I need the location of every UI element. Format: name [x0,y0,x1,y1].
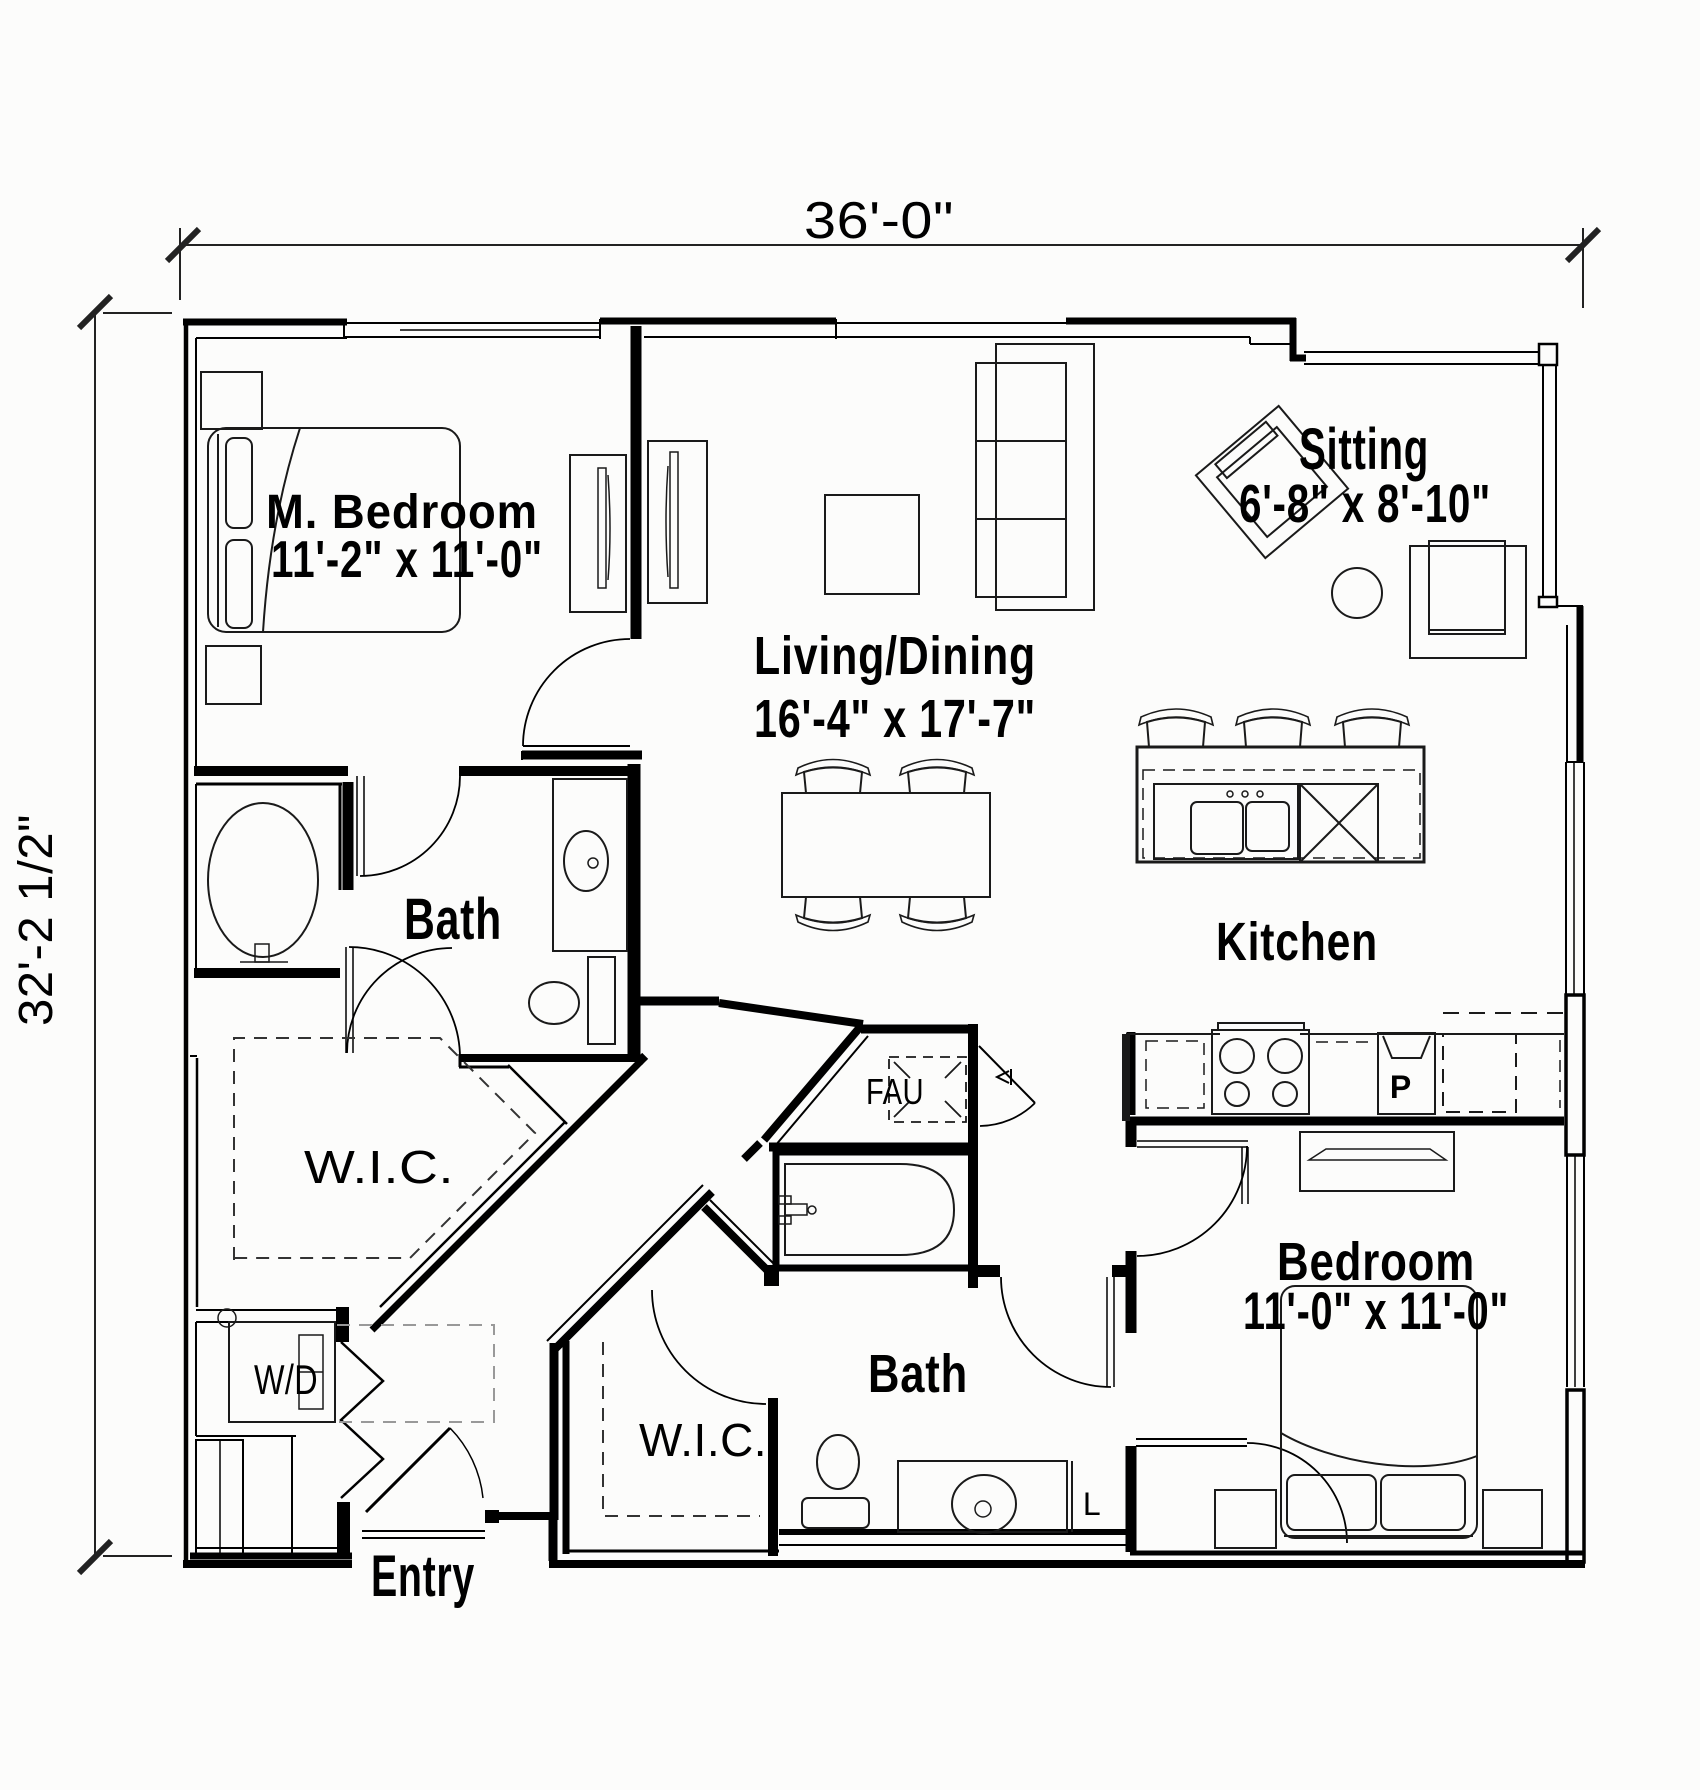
svg-text:16'-4" x 17'-7": 16'-4" x 17'-7" [754,689,1036,749]
svg-text:6'-8" x 8'-10": 6'-8" x 8'-10" [1239,474,1491,534]
svg-text:W.I.C.: W.I.C. [304,1141,454,1193]
svg-text:Bath: Bath [404,887,502,952]
svg-text:Living/Dining: Living/Dining [754,626,1036,686]
svg-text:P: P [1390,1069,1412,1105]
svg-text:36'-0": 36'-0" [804,192,954,250]
svg-text:11'-0" x 11'-0": 11'-0" x 11'-0" [1243,1282,1509,1341]
svg-text:W.I.C.: W.I.C. [639,1414,767,1466]
svg-text:W/D: W/D [254,1356,318,1403]
svg-text:Kitchen: Kitchen [1216,912,1378,972]
svg-text:11'-2" x 11'-0": 11'-2" x 11'-0" [271,531,543,589]
svg-text:Bath: Bath [868,1344,968,1404]
svg-text:32'-2 1/2": 32'-2 1/2" [10,814,63,1026]
svg-text:L: L [1083,1486,1101,1522]
svg-text:Sitting: Sitting [1299,417,1429,482]
svg-text:Entry: Entry [371,1544,475,1609]
svg-text:FAU: FAU [866,1071,924,1112]
